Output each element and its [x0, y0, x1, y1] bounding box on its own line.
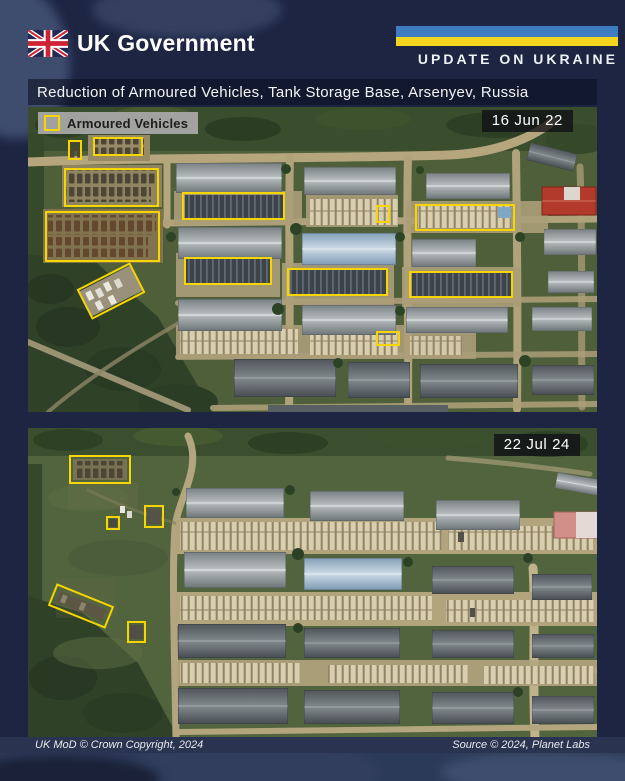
satellite-panel-before: Armoured Vehicles 16 Jun 22: [28, 107, 597, 412]
armoured-vehicles-annotation-box: [376, 205, 390, 223]
armoured-vehicles-annotation-box: [69, 455, 131, 484]
armoured-vehicles-annotation-box: [48, 583, 114, 628]
armoured-vehicles-annotation-box: [127, 621, 146, 643]
ukraine-flag-stripe-yellow: [396, 37, 618, 46]
page-title: Reduction of Armoured Vehicles, Tank Sto…: [28, 84, 528, 101]
armoured-vehicles-annotation-box: [77, 262, 146, 320]
armoured-vehicles-annotation-box: [415, 204, 515, 231]
infographic-page: UK Government UPDATE ON UKRAINE Reductio…: [0, 0, 625, 781]
footer-bar: UK MoD © Crown Copyright, 2024 Source © …: [0, 737, 625, 753]
date-badge-before: 16 Jun 22: [482, 110, 573, 132]
armoured-vehicles-annotation-box: [106, 516, 120, 530]
armoured-vehicles-annotation-box: [182, 192, 285, 220]
title-bar: Reduction of Armoured Vehicles, Tank Sto…: [28, 79, 597, 105]
armoured-vehicles-annotation-box: [287, 268, 388, 296]
date-badge-after: 22 Jul 24: [494, 434, 580, 456]
armoured-vehicles-annotation-box: [45, 211, 160, 262]
header: UK Government UPDATE ON UKRAINE: [28, 26, 597, 72]
ukraine-flag-stripe-blue: [396, 26, 618, 37]
annotation-layer-before: [28, 107, 597, 412]
armoured-vehicles-annotation-box: [144, 505, 164, 528]
armoured-vehicles-legend: Armoured Vehicles: [38, 112, 198, 134]
armoured-vehicles-annotation-box: [68, 140, 82, 160]
yellow-box-swatch-icon: [44, 115, 60, 131]
armoured-vehicles-annotation-box: [409, 271, 513, 298]
brand-text: UK Government: [77, 30, 255, 57]
annotation-layer-after: [28, 428, 597, 737]
update-on-ukraine-banner: UPDATE ON UKRAINE: [396, 26, 618, 67]
banner-label: UPDATE ON UKRAINE: [396, 51, 618, 67]
uk-flag-icon: [28, 30, 68, 57]
source-credit-text: Source © 2024, Planet Labs: [452, 739, 625, 751]
armoured-vehicles-annotation-box: [93, 137, 143, 156]
satellite-panel-after: 22 Jul 24: [28, 428, 597, 737]
legend-label: Armoured Vehicles: [67, 116, 188, 131]
uk-government-brand: UK Government: [28, 30, 255, 57]
armoured-vehicles-annotation-box: [376, 331, 400, 346]
armoured-vehicles-annotation-box: [64, 168, 159, 207]
crown-copyright-text: UK MoD © Crown Copyright, 2024: [0, 739, 203, 751]
armoured-vehicles-annotation-box: [184, 257, 272, 285]
